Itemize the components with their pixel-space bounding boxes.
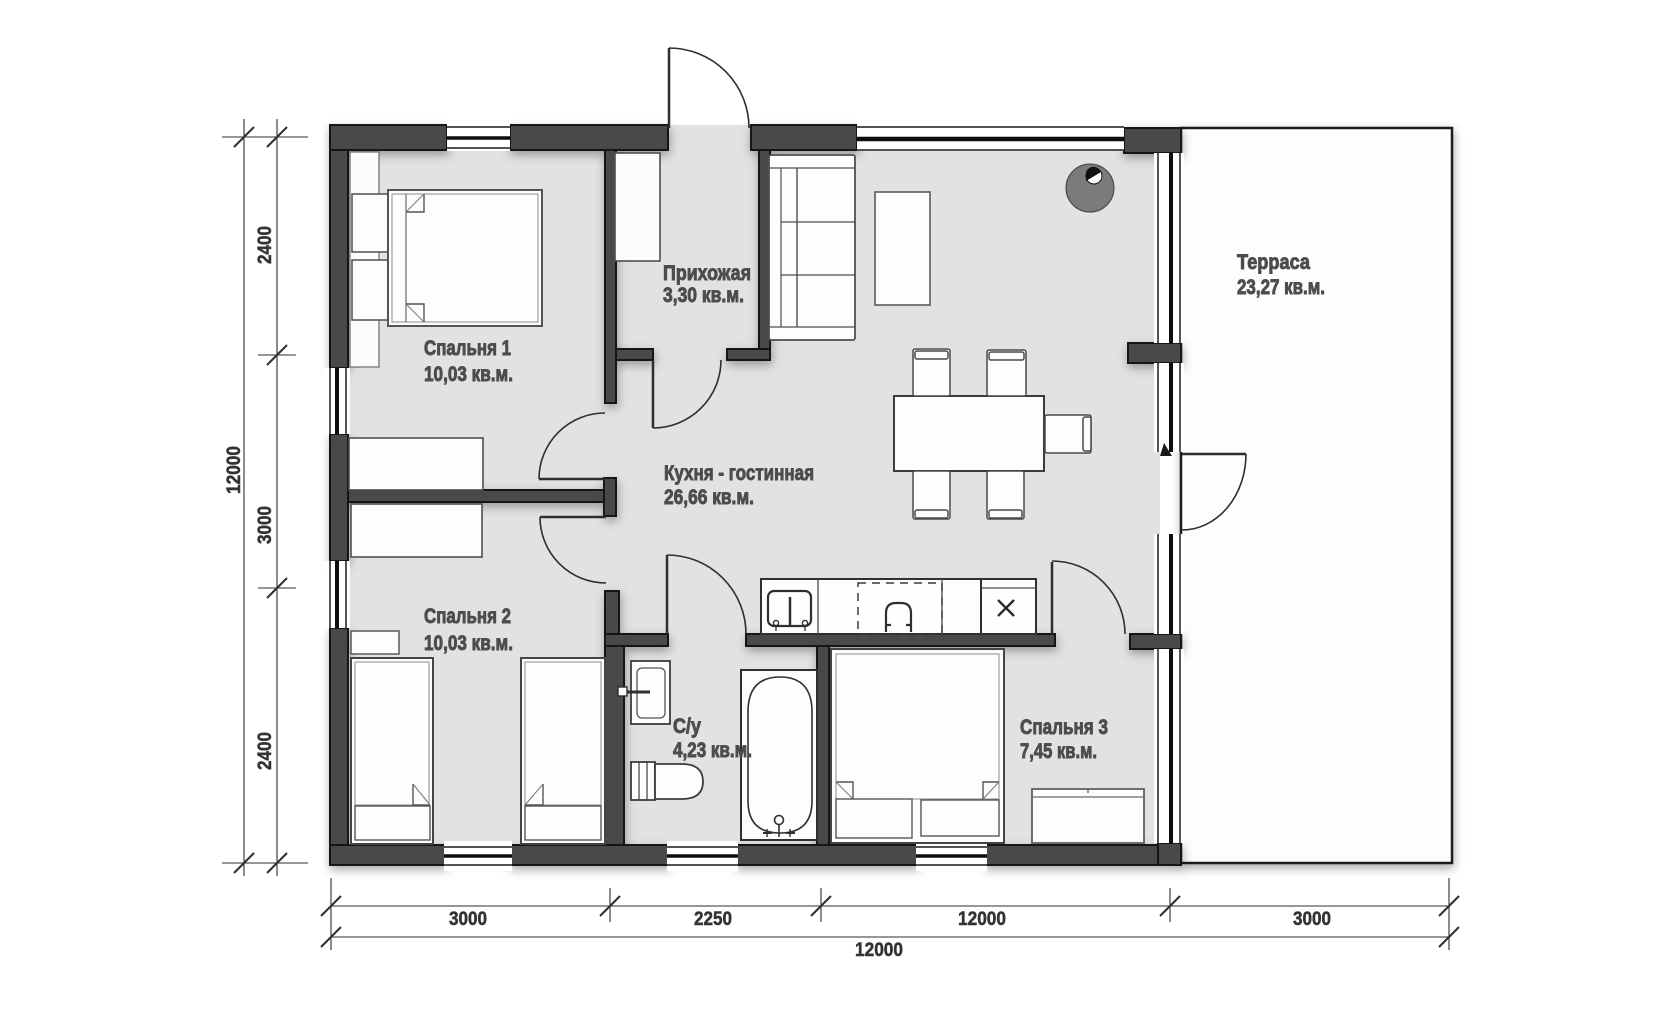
svg-text:3,30 кв.м.: 3,30 кв.м. — [663, 284, 744, 307]
svg-text:3000: 3000 — [449, 909, 487, 930]
svg-text:26,66 кв.м.: 26,66 кв.м. — [664, 486, 754, 509]
svg-text:2250: 2250 — [694, 909, 732, 930]
svg-text:С/у: С/у — [673, 715, 701, 738]
svg-text:12000: 12000 — [855, 940, 903, 961]
svg-text:12000: 12000 — [958, 909, 1006, 930]
svg-text:4,23 кв.м.: 4,23 кв.м. — [673, 739, 752, 762]
svg-text:3000: 3000 — [255, 506, 276, 544]
svg-text:7,45 кв.м.: 7,45 кв.м. — [1020, 740, 1097, 763]
svg-text:3000: 3000 — [1293, 909, 1331, 930]
svg-text:Спальня 3: Спальня 3 — [1020, 716, 1108, 739]
svg-text:Кухня - гостинная: Кухня - гостинная — [664, 462, 814, 485]
svg-text:10,03 кв.м.: 10,03 кв.м. — [424, 632, 513, 655]
svg-text:Спальня 1: Спальня 1 — [424, 337, 511, 360]
svg-text:2400: 2400 — [255, 226, 276, 264]
svg-text:10,03 кв.м.: 10,03 кв.м. — [424, 363, 513, 386]
svg-text:Прихожая: Прихожая — [663, 262, 751, 285]
svg-text:Спальня 2: Спальня 2 — [424, 605, 511, 628]
svg-text:12000: 12000 — [224, 446, 245, 494]
svg-text:Терраса: Терраса — [1237, 251, 1310, 274]
svg-text:23,27 кв.м.: 23,27 кв.м. — [1237, 276, 1325, 299]
svg-text:2400: 2400 — [255, 732, 276, 770]
